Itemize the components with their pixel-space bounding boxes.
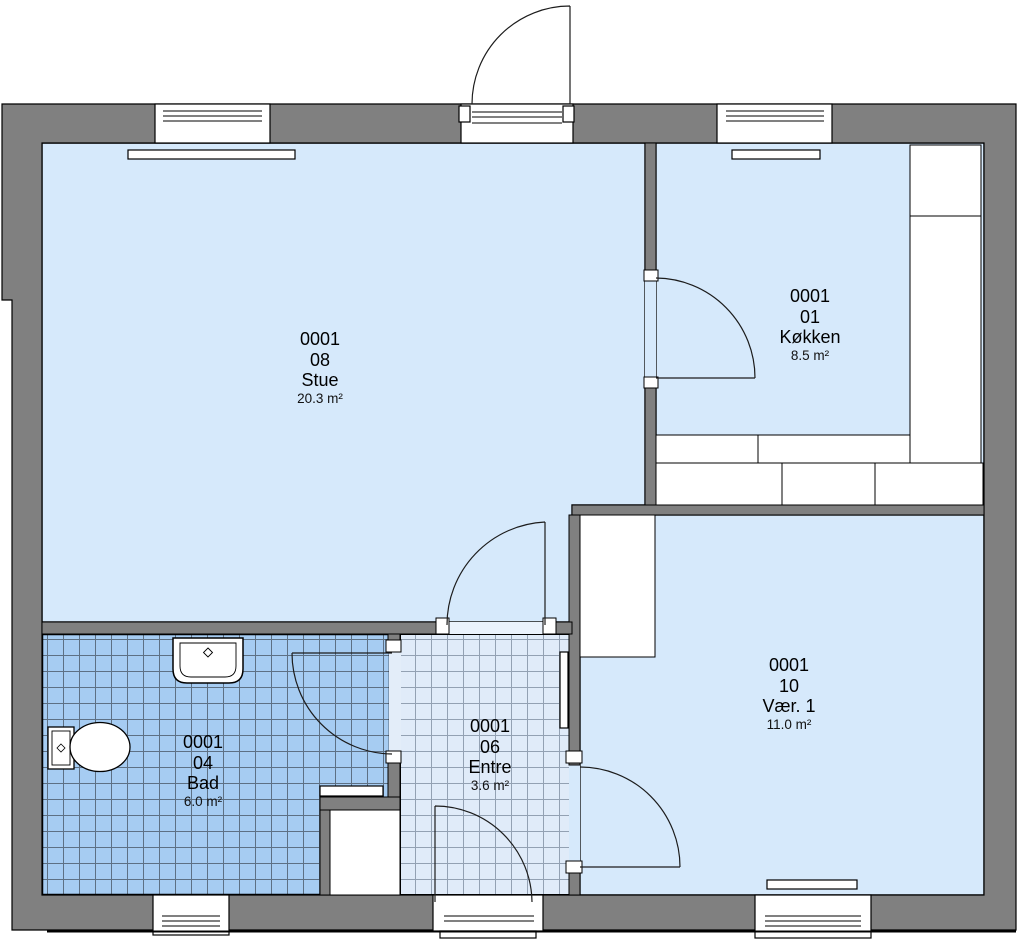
kitchen-counter-bottom-a	[656, 435, 758, 463]
door-exterior-top	[472, 6, 570, 104]
door-frame	[644, 270, 658, 281]
wall-stue-bad	[42, 622, 448, 634]
room-number: 10	[762, 676, 815, 697]
kitchen-counter-bottom-c	[656, 463, 782, 505]
wall-stue-kokken-lower	[645, 378, 656, 515]
room-number: 06	[468, 737, 511, 758]
room-name: Bad	[183, 773, 223, 794]
room-number: 04	[183, 753, 223, 774]
opening-stue-entre	[448, 622, 545, 634]
opening-entre-vaer1	[569, 765, 580, 865]
floor-plan-drawing	[0, 0, 1024, 940]
room-area: 11.0 m²	[762, 717, 815, 733]
room-name: Vær. 1	[762, 696, 815, 717]
room-unit: 0001	[297, 329, 343, 350]
room-label-stue: 0001 08 Stue 20.3 m²	[297, 329, 343, 407]
window-stue-top	[155, 104, 270, 143]
radiator-entre	[560, 652, 568, 728]
room-area: 8.5 m²	[779, 348, 840, 364]
room-area: 6.0 m²	[183, 794, 223, 810]
radiator-bad	[320, 786, 383, 796]
room-label-kokken: 0001 01 Køkken 8.5 m²	[779, 286, 840, 364]
kitchen-counter-right-lower	[910, 216, 981, 463]
wall-kokken-vaer1	[572, 505, 984, 515]
opening-stue-kokken	[645, 278, 656, 378]
room-name: Entre	[468, 757, 511, 778]
door-frame	[566, 861, 582, 873]
room-unit: 0001	[779, 286, 840, 307]
kitchen-counter-bottom-d	[782, 463, 875, 505]
radiator-stue	[128, 150, 295, 159]
room-area: 20.3 m²	[297, 391, 343, 407]
door-frame	[566, 751, 582, 763]
door-frame	[386, 640, 401, 652]
room-name: Køkken	[779, 327, 840, 348]
room-label-vaer1: 0001 10 Vær. 1 11.0 m²	[762, 655, 815, 733]
room-number: 08	[297, 350, 343, 371]
kitchen-counter-bottom-e	[875, 463, 983, 505]
kitchen-counter-right-upper	[910, 145, 981, 216]
room-unit: 0001	[468, 716, 511, 737]
room-label-entre: 0001 06 Entre 3.6 m²	[468, 716, 511, 794]
room-area: 3.6 m²	[468, 778, 511, 794]
bad-utility-niche	[330, 810, 400, 895]
room-stue[interactable]	[42, 143, 645, 622]
room-unit: 0001	[183, 732, 223, 753]
toilet-icon	[48, 723, 130, 772]
radiator-kokken	[732, 150, 820, 159]
window-bad-bottom	[153, 895, 229, 935]
opening-bad-entre	[389, 645, 401, 755]
door-frame	[644, 377, 658, 388]
wall-entre-vaer1-upper	[569, 515, 580, 765]
floor-plan-canvas: 0001 08 Stue 20.3 m² 0001 01 Køkken 8.5 …	[0, 0, 1024, 940]
kitchen-counter-bottom-b	[758, 435, 910, 463]
wall-bad-niche-top	[320, 797, 400, 810]
door-threshold-top	[459, 104, 574, 143]
wall-stue-kokken-upper	[645, 143, 656, 278]
sink-icon	[173, 638, 243, 683]
door-frame	[386, 751, 401, 763]
window-kokken-top	[717, 104, 832, 143]
radiator-vaer1	[767, 880, 857, 889]
wall-bad-niche-left	[320, 810, 330, 895]
room-number: 01	[779, 307, 840, 328]
room-unit: 0001	[762, 655, 815, 676]
room-name: Stue	[297, 370, 343, 391]
vaer1-closet	[580, 515, 655, 657]
room-label-bad: 0001 04 Bad 6.0 m²	[183, 732, 223, 810]
